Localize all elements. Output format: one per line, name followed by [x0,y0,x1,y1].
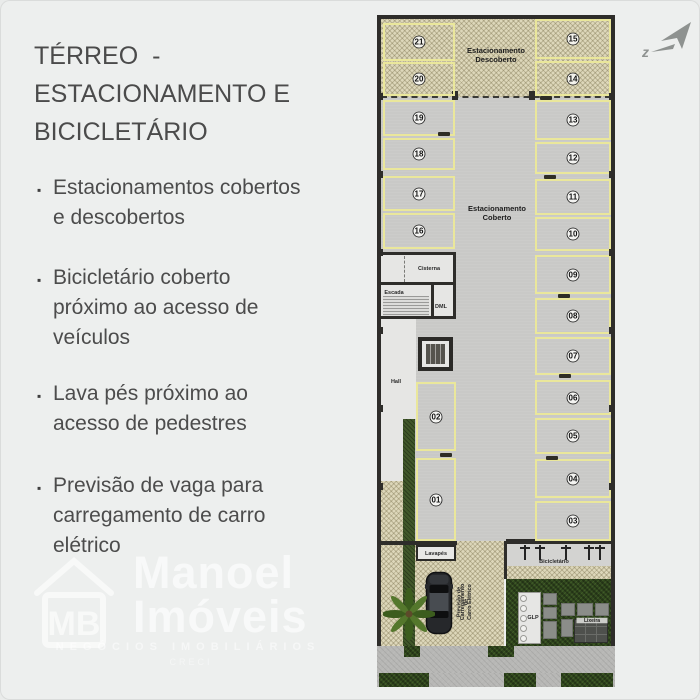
uncovered-parking-label: Estacionamento Descoberto [436,47,556,65]
wheel-stop [440,453,452,457]
bike-rack-icon [561,545,571,560]
gas-cylinder-icon [520,595,527,602]
paver [561,619,573,637]
covered-parking-label: Estacionamento Coberto [437,205,557,223]
bullet-text: elétrico [34,531,354,561]
watermark-creci: CRECI [101,657,281,667]
spot-number: 20 [413,73,426,86]
wall-pillar [609,249,614,256]
bullet-item: ▪ Lava pés próximo ao acesso de pedestre… [34,379,354,439]
title-line: BICICLETÁRIO [34,113,290,151]
bullet-text: próximo ao acesso de [34,293,354,323]
bike-rack-icon [520,545,530,560]
wheel-stop [559,374,571,378]
spot-number: 16 [413,225,426,238]
hall-label: Hall [380,378,413,384]
spot-number: 09 [567,268,580,281]
svg-text:z: z [641,44,649,60]
svg-text:MB: MB [48,605,101,643]
wall-pillar [378,483,383,490]
spot-number: 19 [413,112,426,125]
bullet-text: Bicicletário coberto [34,263,354,293]
parking-spot-13: 13 [535,100,611,140]
spot-number: 17 [413,187,426,200]
wall-pillar [378,93,383,100]
bike-rack-icon [584,545,594,560]
paver [561,603,575,616]
parking-spot-08: 08 [535,298,611,334]
watermark-logo: MB Manoel Imóveis NEGÓCIOS IMOBILIÁRIOS … [31,549,351,679]
wheel-stop [558,294,570,298]
bullet-text: acesso de pedestres [34,409,354,439]
wall-pillar [378,171,383,178]
wall-pillar [378,327,383,334]
cisterna-label: Cisterna [413,265,446,271]
parking-spot-06: 06 [535,380,611,415]
paver [543,621,557,639]
title-line: ESTACIONAMENTO E [34,75,290,113]
bullet-marker-icon: ▪ [37,175,41,205]
paver [595,603,609,616]
parking-spot-02: 02 [416,382,456,451]
parking-spot-09: 09 [535,255,611,294]
parking-spot-01: 01 [416,458,456,541]
spot-number: 06 [567,391,580,404]
bullet-marker-icon: ▪ [37,381,41,411]
spot-number: 13 [567,114,580,127]
north-arrow-icon: z [639,17,697,63]
wall-pillar [609,405,614,412]
wheel-stop [544,175,556,179]
parking-spot-18: 18 [383,138,455,170]
gas-cylinder-icon [520,635,527,642]
wall-pillar [378,249,383,256]
spot-number: 10 [567,228,580,241]
parking-spot-20: 20 [383,62,455,96]
wall-pillar [378,405,383,412]
parking-spot-14: 14 [535,61,611,96]
bullet-text: carregamento de carro [34,501,354,531]
bullet-item: ▪ Bicicletário coberto próximo ao acesso… [34,263,354,353]
spot-number: 04 [567,472,580,485]
spot-number: 15 [567,33,580,46]
spot-number: 11 [567,191,580,204]
slide-background: TÉRREO - ESTACIONAMENTO E BICICLETÁRIO ▪… [0,0,700,700]
parking-spot-04: 04 [535,459,611,498]
palm-tree [383,588,435,640]
spot-number: 07 [567,350,580,363]
page-title: TÉRREO - ESTACIONAMENTO E BICICLETÁRIO [34,37,290,151]
bullet-text: Estacionamentos cobertos [34,173,354,203]
label-line: Carro Elétrico [468,583,472,620]
escada-label: Escada [378,289,411,295]
gas-cylinder-icon [520,625,527,632]
spot-number: 01 [430,493,443,506]
bullet-text: Previsão de vaga para [34,471,354,501]
parking-spot-03: 03 [535,501,611,541]
lixeira-label: Lixeira [577,618,608,624]
wheel-stop [438,132,450,136]
bike-rack-icon [535,545,545,560]
wheel-stop [546,456,558,460]
spot-number: 02 [430,410,443,423]
paver [543,607,557,619]
paver [577,603,593,616]
parking-spot-07: 07 [535,337,611,375]
label-line: Coberto [483,214,512,222]
bullet-text: Lava pés próximo ao [34,379,354,409]
wall-pillar [609,483,614,490]
bullet-marker-icon: ▪ [37,265,41,295]
parking-spot-19: 19 [383,100,455,136]
dml-label: DML [425,303,458,309]
bullet-item: ▪ Previsão de vaga para carregamento de … [34,471,354,561]
bullet-text: veículos [34,323,354,353]
wheel-stop [540,96,552,100]
label-line: Estacionamento [467,47,525,55]
wall-pillar [609,171,614,178]
parking-spot-05: 05 [535,418,611,454]
spot-number: 12 [567,152,580,165]
gas-cylinder-icon [520,605,527,612]
bullet-text: e descobertos [34,203,354,233]
watermark-name-2: Imóveis [133,591,308,643]
watermark-tagline: NEGÓCIOS IMOBILIÁRIOS [33,641,343,653]
bullet-marker-icon: ▪ [37,473,41,503]
spot-number: 21 [413,36,426,49]
house-logo-icon: MB [31,553,117,655]
paver [543,593,557,605]
spot-number: 03 [567,515,580,528]
label-line: Estacionamento [468,205,526,213]
bullet-item: ▪ Estacionamentos cobertos e descobertos [34,173,354,233]
parking-spot-12: 12 [535,142,611,174]
floor-plan: Lavapés 21201918171615141312111009080706… [377,15,615,687]
plan-spots-layer: 2120191817161514131211100908070605040302… [377,15,615,687]
label-line: Descoberto [475,56,516,64]
spot-number: 05 [567,430,580,443]
spot-number: 08 [567,310,580,323]
wall-pillar [609,327,614,334]
spot-number: 18 [413,148,426,161]
bike-rack-icon [595,545,605,560]
ev-charging-label: Previsão de Carregamento de Carro Elétri… [457,583,471,620]
title-line: TÉRREO - [34,37,290,75]
wall-pillar [609,93,614,100]
spot-number: 14 [567,72,580,85]
